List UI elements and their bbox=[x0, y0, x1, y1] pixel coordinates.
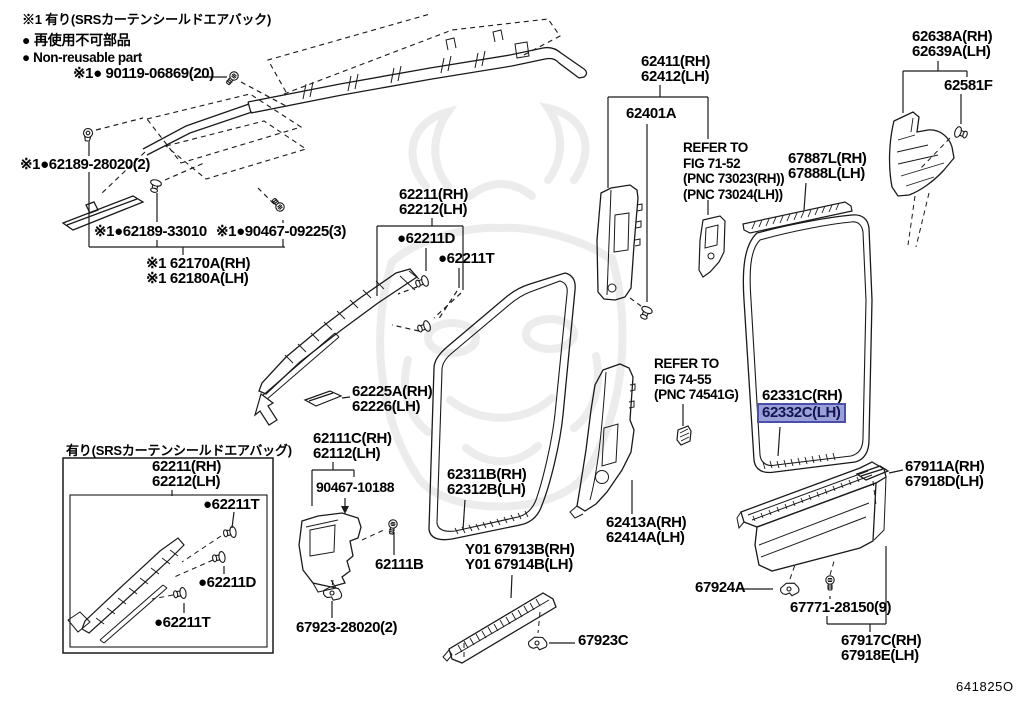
part-label-62332c-highlighted[interactable]: 62332C(LH) bbox=[762, 405, 846, 423]
part-label-90119: ※1● 90119-06869(20) bbox=[73, 66, 214, 81]
part-label-62189-28020: ※1●62189-28020(2) bbox=[20, 157, 150, 172]
door-opening-trim-62331c-drawing bbox=[743, 215, 872, 473]
part-label-62311b: 62311B(RH)62312B(LH) bbox=[447, 467, 526, 497]
part-label-67917c: 67917C(RH)67918E(LH) bbox=[841, 633, 921, 663]
part-label-67913b: Y01 67913B(RH)Y01 67914B(LH) bbox=[465, 542, 574, 572]
part-label-62401a: 62401A bbox=[626, 106, 676, 121]
part-label-90467-10188: 90467-10188 bbox=[316, 480, 394, 495]
part-label-62638a: 62638A(RH)62639A(LH) bbox=[912, 29, 992, 59]
inset-title: 有り(SRSカーテンシールドエアバッグ) bbox=[66, 442, 292, 459]
part-label-90467-09225: ※1●90467-09225(3) bbox=[216, 224, 346, 239]
refer-fig-74-55-part-drawing bbox=[677, 404, 691, 445]
part-label-62170a: ※1 62170A(RH)※1 62180A(LH) bbox=[146, 256, 250, 286]
diagram-code: 641825O bbox=[956, 679, 1014, 694]
part-label-67911a: 67911A(RH)67918D(LH) bbox=[905, 459, 984, 489]
part-label-67887l: 67887L(RH)67888L(LH) bbox=[788, 151, 867, 181]
part-label-62111c: 62111C(RH)62112(LH) bbox=[313, 431, 392, 461]
part-label-62411: 62411(RH)62412(LH) bbox=[641, 54, 710, 84]
part-label-62211t: ●62211T bbox=[438, 251, 494, 266]
inset-label-62211t-lower: ●62211T bbox=[154, 615, 210, 630]
curtain-airbag-drawing bbox=[63, 14, 587, 230]
part-label-62581f: 62581F bbox=[944, 78, 992, 93]
inset-label-62211: 62211(RH)62212(LH) bbox=[152, 459, 221, 489]
part-label-62331c: 62331C(RH) bbox=[762, 388, 842, 403]
note-nonreusable-jp: ● 再使用不可部品 bbox=[22, 32, 131, 49]
refer-note-fig-71-52: REFER TOFIG 71-52 (PNC 73023(RH))(PNC 73… bbox=[683, 140, 784, 202]
part-label-67923c: 67923C bbox=[578, 633, 628, 648]
inset-label-62211t-upper: ●62211T bbox=[203, 497, 259, 512]
part-label-62225a: 62225A(RH)62226(LH) bbox=[352, 384, 432, 414]
inset-label-62211d: ●62211D bbox=[198, 575, 256, 590]
part-label-62189-33010: ※1●62189-33010 bbox=[94, 224, 207, 239]
note-nonreusable-en: ● Non-reusable part bbox=[22, 50, 142, 65]
highlight-box: 62332C(LH) bbox=[757, 403, 846, 423]
sill-plate-67913b-drawing bbox=[443, 575, 575, 663]
parts-diagram-page: ※1 有り(SRSカーテンシールドエアバック) ● 再使用不可部品 ● Non-… bbox=[0, 0, 1024, 707]
part-label-62111b: 62111B bbox=[375, 557, 424, 572]
part-label-62413a: 62413A(RH)62414A(LH) bbox=[606, 515, 686, 545]
garnish-62225a-drawing bbox=[305, 391, 350, 406]
part-label-62211d: ●62211D bbox=[397, 231, 455, 246]
part-label-67923-28020: 67923-28020(2) bbox=[296, 620, 397, 635]
refer-note-fig-74-55: REFER TOFIG 74-55 (PNC 74541G) bbox=[654, 356, 739, 403]
note-srs-airbag: ※1 有り(SRSカーテンシールドエアバック) bbox=[22, 11, 271, 28]
part-label-67771-28150: 67771-28150(9) bbox=[790, 600, 891, 615]
part-label-67924a: 67924A bbox=[695, 580, 745, 595]
part-label-62211: 62211(RH)62212(LH) bbox=[399, 187, 468, 217]
refer-fig-71-52-part-drawing bbox=[699, 216, 725, 277]
